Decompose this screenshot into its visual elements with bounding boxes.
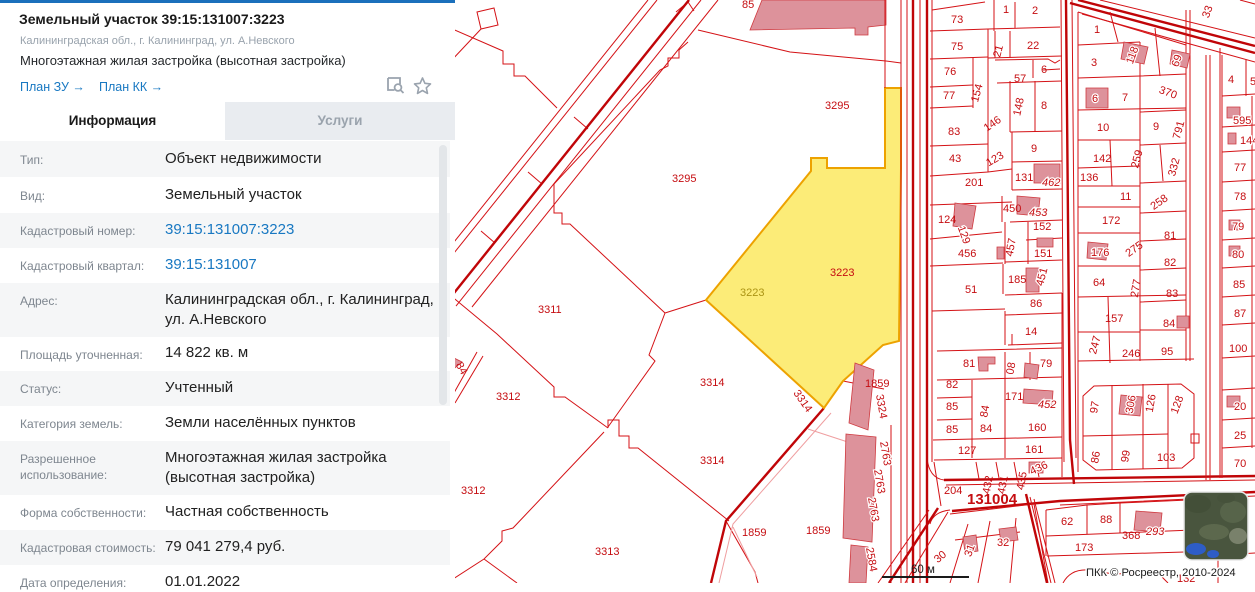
- svg-text:86: 86: [1089, 450, 1103, 464]
- svg-text:95: 95: [1161, 346, 1173, 358]
- svg-text:5: 5: [1250, 76, 1255, 88]
- svg-text:81: 81: [1164, 230, 1176, 242]
- svg-text:84: 84: [1163, 318, 1175, 330]
- svg-text:204: 204: [944, 485, 962, 497]
- svg-text:161: 161: [1025, 444, 1043, 456]
- svg-text:80: 80: [1232, 249, 1244, 261]
- svg-text:87: 87: [1234, 308, 1246, 320]
- svg-text:171: 171: [1005, 391, 1023, 403]
- svg-text:2: 2: [1032, 5, 1038, 17]
- svg-text:3312: 3312: [461, 485, 485, 497]
- svg-text:453: 453: [1029, 207, 1048, 219]
- svg-text:62: 62: [1061, 516, 1073, 528]
- svg-text:3295: 3295: [825, 100, 849, 112]
- svg-text:84: 84: [980, 423, 992, 435]
- svg-text:142: 142: [1093, 153, 1111, 165]
- svg-text:60 м: 60 м: [911, 564, 935, 576]
- svg-text:157: 157: [1105, 313, 1123, 325]
- svg-text:9: 9: [1031, 143, 1037, 155]
- svg-text:131004: 131004: [967, 491, 1018, 508]
- svg-text:1859: 1859: [806, 525, 830, 537]
- svg-text:ПКК © Росреестр, 2010-2024: ПКК © Росреестр, 2010-2024: [1086, 567, 1236, 579]
- svg-text:3313: 3313: [595, 546, 619, 558]
- svg-text:1: 1: [1094, 24, 1100, 36]
- svg-text:84: 84: [978, 404, 992, 418]
- svg-text:51: 51: [965, 284, 977, 296]
- svg-text:368: 368: [1122, 530, 1140, 542]
- svg-text:08: 08: [1004, 361, 1018, 375]
- svg-text:462: 462: [1042, 177, 1060, 189]
- svg-text:1859: 1859: [865, 378, 889, 390]
- svg-text:14: 14: [1025, 326, 1037, 338]
- svg-text:83: 83: [948, 126, 960, 138]
- svg-text:79: 79: [1232, 221, 1244, 233]
- svg-text:3312: 3312: [496, 391, 520, 403]
- svg-text:160: 160: [1028, 422, 1046, 434]
- svg-text:88: 88: [1100, 514, 1112, 526]
- svg-text:8: 8: [1041, 100, 1047, 112]
- svg-text:144: 144: [1240, 135, 1255, 147]
- svg-text:77: 77: [943, 90, 955, 102]
- svg-text:73: 73: [951, 14, 963, 26]
- svg-text:86: 86: [1030, 298, 1042, 310]
- svg-text:176: 176: [1091, 247, 1109, 259]
- svg-text:152: 152: [1033, 221, 1051, 233]
- svg-text:78: 78: [1234, 191, 1246, 203]
- svg-text:85: 85: [946, 424, 958, 436]
- svg-text:131: 131: [1015, 172, 1033, 184]
- svg-text:85: 85: [946, 401, 958, 413]
- svg-text:77: 77: [1234, 162, 1246, 174]
- svg-text:3223: 3223: [830, 267, 854, 279]
- svg-text:20: 20: [1234, 401, 1246, 413]
- svg-text:82: 82: [946, 379, 958, 391]
- svg-text:97: 97: [1088, 400, 1102, 414]
- svg-text:136: 136: [1080, 172, 1098, 184]
- svg-text:57: 57: [1014, 73, 1026, 85]
- svg-text:7: 7: [1122, 92, 1128, 104]
- svg-text:293: 293: [1145, 526, 1165, 538]
- svg-text:3: 3: [1091, 57, 1097, 69]
- svg-text:172: 172: [1102, 215, 1120, 227]
- svg-text:246: 246: [1122, 348, 1140, 360]
- svg-text:3314: 3314: [700, 455, 724, 467]
- svg-text:127: 127: [958, 445, 976, 457]
- svg-text:43: 43: [949, 153, 961, 165]
- svg-text:100: 100: [1229, 343, 1247, 355]
- svg-text:201: 201: [965, 177, 983, 189]
- svg-text:22: 22: [1027, 40, 1039, 52]
- svg-text:3311: 3311: [538, 304, 562, 316]
- svg-text:452: 452: [1038, 399, 1056, 411]
- svg-text:450: 450: [1003, 203, 1021, 215]
- svg-text:151: 151: [1034, 248, 1052, 260]
- svg-text:124: 124: [938, 214, 956, 226]
- svg-text:103: 103: [1157, 452, 1175, 464]
- svg-text:595: 595: [1233, 115, 1251, 127]
- svg-text:3314: 3314: [700, 377, 724, 389]
- svg-text:11: 11: [1120, 191, 1131, 203]
- svg-text:75: 75: [951, 41, 963, 53]
- svg-text:3223: 3223: [740, 287, 764, 299]
- svg-text:9: 9: [1153, 121, 1159, 133]
- svg-text:25: 25: [1234, 430, 1246, 442]
- svg-text:32: 32: [997, 537, 1009, 549]
- svg-text:83: 83: [1166, 288, 1178, 300]
- svg-text:185: 185: [1008, 274, 1026, 286]
- svg-text:6: 6: [1041, 64, 1047, 76]
- svg-text:99: 99: [1119, 449, 1133, 463]
- svg-text:85: 85: [1233, 279, 1245, 291]
- svg-text:1: 1: [1003, 4, 1009, 16]
- svg-text:456: 456: [958, 248, 976, 260]
- svg-text:4: 4: [1228, 74, 1234, 86]
- svg-text:70: 70: [1234, 458, 1246, 470]
- svg-text:76: 76: [944, 66, 956, 78]
- svg-text:81: 81: [963, 358, 975, 370]
- svg-text:3295: 3295: [672, 173, 696, 185]
- svg-text:82: 82: [1164, 257, 1176, 269]
- svg-text:85: 85: [742, 0, 754, 11]
- svg-text:79: 79: [1040, 358, 1052, 370]
- svg-text:10: 10: [1097, 122, 1109, 134]
- svg-text:1859: 1859: [742, 527, 766, 539]
- svg-text:6: 6: [1092, 93, 1098, 105]
- svg-text:64: 64: [1093, 277, 1105, 289]
- svg-text:173: 173: [1075, 542, 1093, 554]
